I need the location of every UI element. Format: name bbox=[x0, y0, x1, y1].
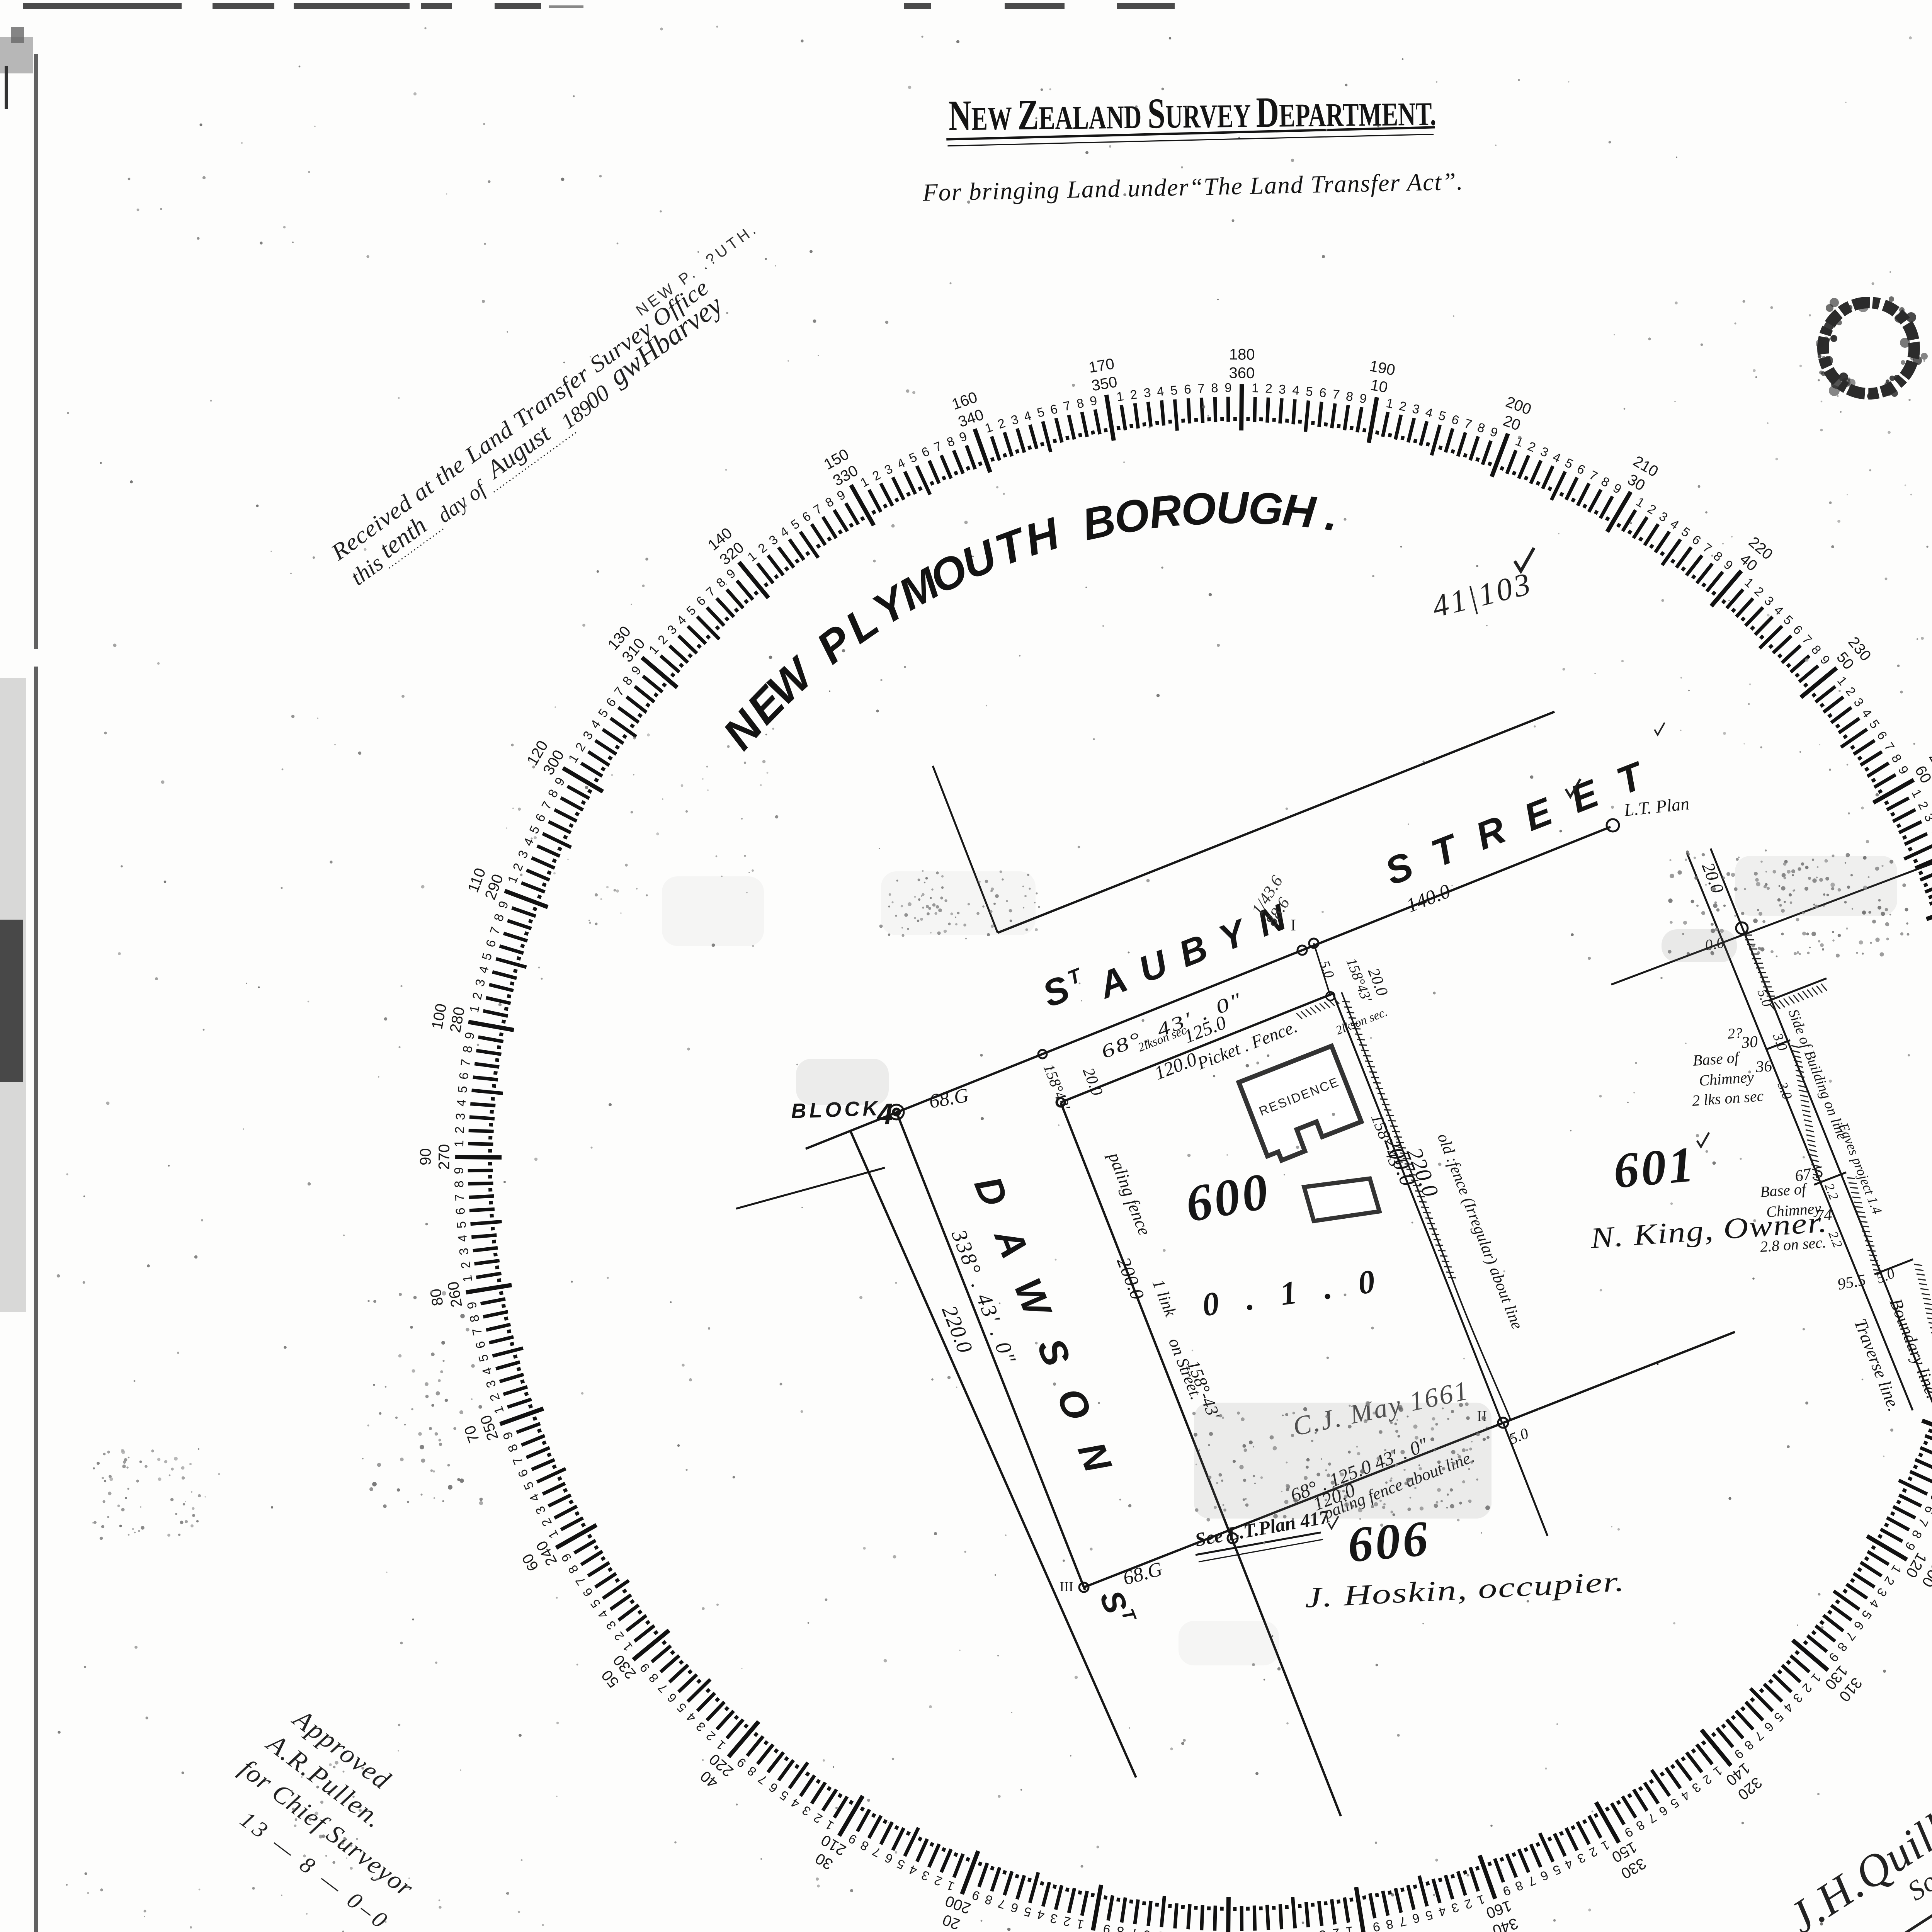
svg-text:G: G bbox=[1247, 483, 1284, 534]
svg-text:5: 5 bbox=[1305, 384, 1314, 399]
svg-text:1: 1 bbox=[452, 1140, 466, 1147]
svg-text:2?: 2? bbox=[1727, 1025, 1743, 1042]
svg-text:601: 601 bbox=[1611, 1136, 1698, 1199]
svg-text:3: 3 bbox=[1318, 1927, 1327, 1932]
svg-text:R: R bbox=[1146, 485, 1184, 538]
svg-text:6: 6 bbox=[453, 1207, 468, 1215]
svg-text:1: 1 bbox=[1252, 381, 1259, 395]
svg-text:74: 74 bbox=[1815, 1206, 1832, 1225]
svg-text:606: 606 bbox=[1345, 1510, 1432, 1573]
svg-text:180: 180 bbox=[1229, 346, 1255, 363]
svg-text:III: III bbox=[1060, 1579, 1073, 1594]
svg-text:7: 7 bbox=[452, 1194, 467, 1202]
svg-text:4: 4 bbox=[1156, 384, 1165, 399]
svg-text:9: 9 bbox=[451, 1167, 466, 1174]
svg-text:8: 8 bbox=[452, 1180, 466, 1188]
svg-text:80: 80 bbox=[427, 1287, 447, 1307]
svg-text:270: 270 bbox=[435, 1144, 453, 1170]
svg-text:3: 3 bbox=[453, 1112, 468, 1121]
svg-text:6: 6 bbox=[1184, 382, 1192, 396]
svg-text:4: 4 bbox=[455, 1234, 470, 1243]
svg-text:Base of: Base of bbox=[1692, 1048, 1741, 1069]
svg-text:360: 360 bbox=[1229, 364, 1255, 382]
svg-text:I: I bbox=[1291, 917, 1296, 934]
svg-text:5: 5 bbox=[454, 1221, 469, 1229]
svg-text:90: 90 bbox=[417, 1148, 434, 1165]
svg-text:2: 2 bbox=[1265, 381, 1273, 396]
svg-text:9: 9 bbox=[1225, 380, 1232, 395]
svg-text:36: 36 bbox=[1755, 1057, 1772, 1076]
svg-text:8: 8 bbox=[1211, 381, 1218, 395]
svg-text:30: 30 bbox=[1740, 1033, 1758, 1052]
svg-text:3: 3 bbox=[1278, 382, 1286, 396]
svg-text:5: 5 bbox=[455, 1085, 470, 1094]
svg-text:U: U bbox=[1216, 483, 1250, 533]
svg-text:7: 7 bbox=[1197, 381, 1205, 396]
svg-text:H: H bbox=[1281, 484, 1318, 537]
svg-text:4: 4 bbox=[1292, 383, 1300, 397]
svg-text:10: 10 bbox=[1369, 376, 1389, 396]
svg-text:4: 4 bbox=[454, 1099, 468, 1107]
svg-text:5: 5 bbox=[1170, 383, 1178, 398]
svg-text:O: O bbox=[1180, 483, 1217, 535]
svg-text:2: 2 bbox=[452, 1126, 467, 1134]
